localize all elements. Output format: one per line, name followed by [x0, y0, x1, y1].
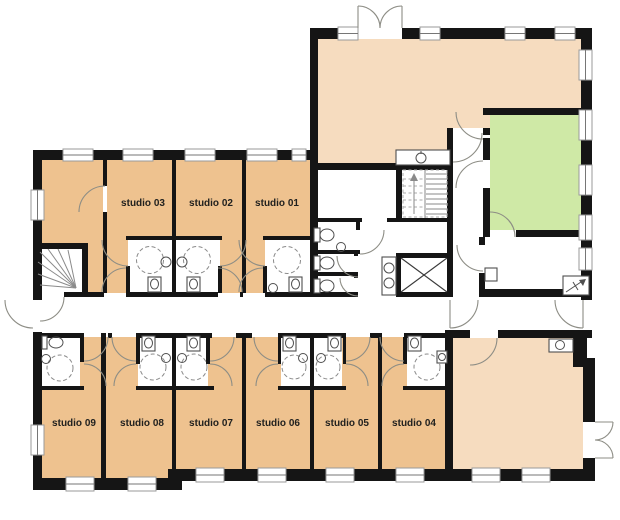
window — [396, 468, 424, 482]
window — [31, 190, 44, 220]
window — [420, 27, 440, 40]
door-arc — [5, 300, 33, 328]
room-label-studio-01: studio 01 — [255, 198, 299, 209]
toilet-icon — [283, 336, 296, 351]
toilet-icon — [408, 336, 421, 351]
stair-direction-arrow — [410, 173, 418, 181]
door-arc — [40, 297, 64, 321]
window — [247, 149, 277, 161]
window — [579, 248, 592, 270]
door-arc — [457, 245, 483, 271]
sink-counter-hall — [382, 257, 396, 295]
door-arc — [453, 133, 482, 162]
floor-plan-drawing: studio 03 studio 02 studio 01 studio 09 … — [0, 0, 620, 520]
electrical-panel — [485, 268, 497, 281]
room-label-studio-06: studio 06 — [256, 418, 300, 429]
window — [292, 149, 306, 161]
room-label-studio-02: studio 02 — [189, 198, 233, 209]
window — [258, 468, 286, 482]
window — [579, 215, 592, 240]
toilet-icon — [187, 277, 200, 292]
window — [123, 149, 153, 161]
window — [522, 468, 550, 482]
room-green — [490, 115, 581, 230]
door-arc — [456, 161, 483, 188]
toilet-icon — [314, 279, 334, 293]
sink-counter-common-room — [396, 150, 450, 165]
door-arc — [450, 300, 478, 328]
door-arc — [360, 230, 384, 254]
window — [63, 149, 93, 161]
toilet-icon — [187, 336, 200, 351]
room-lounge — [453, 338, 583, 469]
room-label-studio-09: studio 09 — [52, 418, 96, 429]
double-door-east — [595, 422, 613, 458]
toilet-icon — [314, 256, 334, 270]
window — [31, 425, 44, 455]
main-staircase — [403, 170, 448, 218]
room-label-studio-07: studio 07 — [189, 418, 233, 429]
window — [472, 468, 500, 482]
window — [555, 27, 575, 40]
room-label-studio-08: studio 08 — [120, 418, 164, 429]
toilet-icon — [142, 336, 155, 351]
window — [579, 50, 592, 80]
window — [128, 477, 156, 491]
toilet-icon — [289, 277, 302, 292]
door-arc — [555, 300, 583, 328]
sink-lounge — [549, 339, 573, 352]
window — [66, 477, 94, 491]
double-door-north — [358, 6, 402, 28]
floor-plan-page: studio 03 studio 02 studio 01 studio 09 … — [0, 0, 620, 520]
window — [185, 149, 215, 161]
window — [196, 468, 224, 482]
bathroom-pod-floor — [265, 238, 310, 293]
room-label-studio-05: studio 05 — [325, 418, 369, 429]
window — [338, 27, 358, 40]
window — [326, 468, 354, 482]
room-label-studio-04: studio 04 — [392, 418, 436, 429]
room-label-studio-03: studio 03 — [121, 198, 165, 209]
duct-niche — [563, 276, 589, 295]
toilet-icon — [314, 228, 334, 242]
window — [579, 110, 592, 140]
elevator — [401, 258, 447, 292]
window — [505, 27, 525, 40]
toilet-icon — [328, 336, 341, 351]
sink-icon — [437, 351, 447, 363]
window — [579, 165, 592, 195]
toilet-icon — [148, 277, 161, 292]
